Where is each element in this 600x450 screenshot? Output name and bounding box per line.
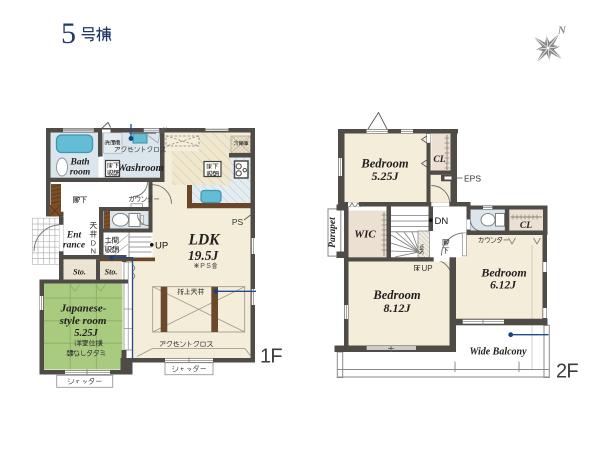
svg-text:Sto.: Sto. <box>73 268 86 277</box>
svg-text:2F: 2F <box>556 361 578 383</box>
svg-text:Bedroom: Bedroom <box>480 266 526 280</box>
svg-text:P: P <box>200 263 205 270</box>
svg-text:LDK: LDK <box>188 232 222 249</box>
svg-text:Bath: Bath <box>69 158 89 168</box>
svg-text:Wide Balcony: Wide Balcony <box>469 347 527 358</box>
svg-text:8.12J: 8.12J <box>384 301 412 315</box>
svg-text:5.25J: 5.25J <box>74 328 98 339</box>
svg-text:UP: UP <box>155 240 168 251</box>
svg-text:19.5J: 19.5J <box>188 248 220 263</box>
svg-text:style room: style room <box>59 315 107 327</box>
svg-text:Ent: Ent <box>66 231 82 241</box>
svg-text:DN: DN <box>435 216 449 227</box>
svg-text:1F: 1F <box>260 346 282 368</box>
svg-text:UP: UP <box>422 264 433 273</box>
svg-text:Parapet: Parapet <box>328 217 338 248</box>
svg-text:6.12J: 6.12J <box>490 280 517 292</box>
svg-text:5.25J: 5.25J <box>372 169 400 183</box>
svg-text:rance: rance <box>63 241 86 251</box>
svg-text:Sto.: Sto. <box>105 268 118 277</box>
svg-text:WIC: WIC <box>354 229 376 241</box>
svg-text:S: S <box>206 263 211 270</box>
svg-text:N: N <box>557 24 567 36</box>
svg-text:PS: PS <box>232 217 244 227</box>
svg-text:Washroom: Washroom <box>117 163 164 174</box>
svg-text:Japanese-: Japanese- <box>60 303 107 315</box>
svg-text:Bedroom: Bedroom <box>372 288 421 302</box>
svg-text:N: N <box>91 247 96 256</box>
svg-text:Sto.: Sto. <box>418 243 426 254</box>
svg-text:CL: CL <box>520 221 532 231</box>
svg-text:CL: CL <box>433 155 445 165</box>
svg-text:room: room <box>70 168 91 178</box>
svg-text:5: 5 <box>61 17 76 50</box>
svg-text:EPS: EPS <box>464 174 481 184</box>
